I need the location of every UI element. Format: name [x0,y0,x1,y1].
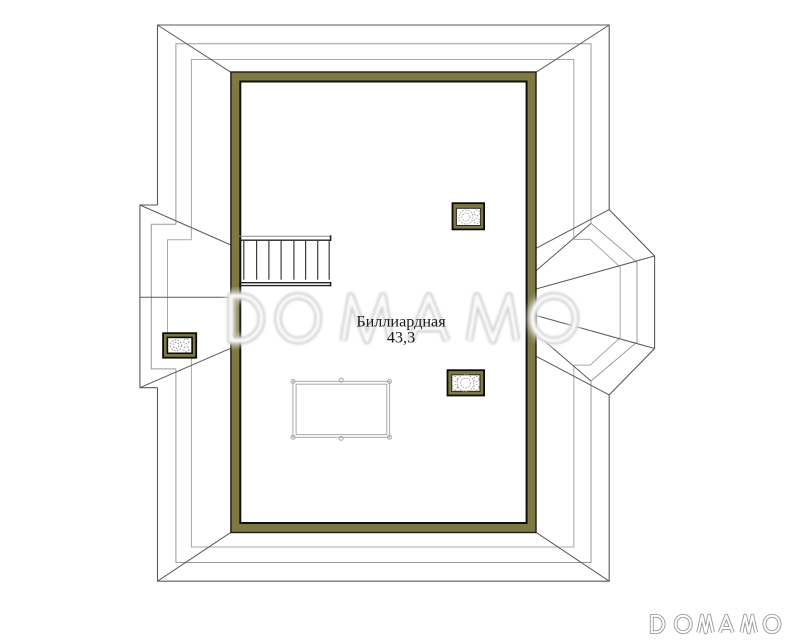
svg-text:43,3: 43,3 [387,329,415,347]
